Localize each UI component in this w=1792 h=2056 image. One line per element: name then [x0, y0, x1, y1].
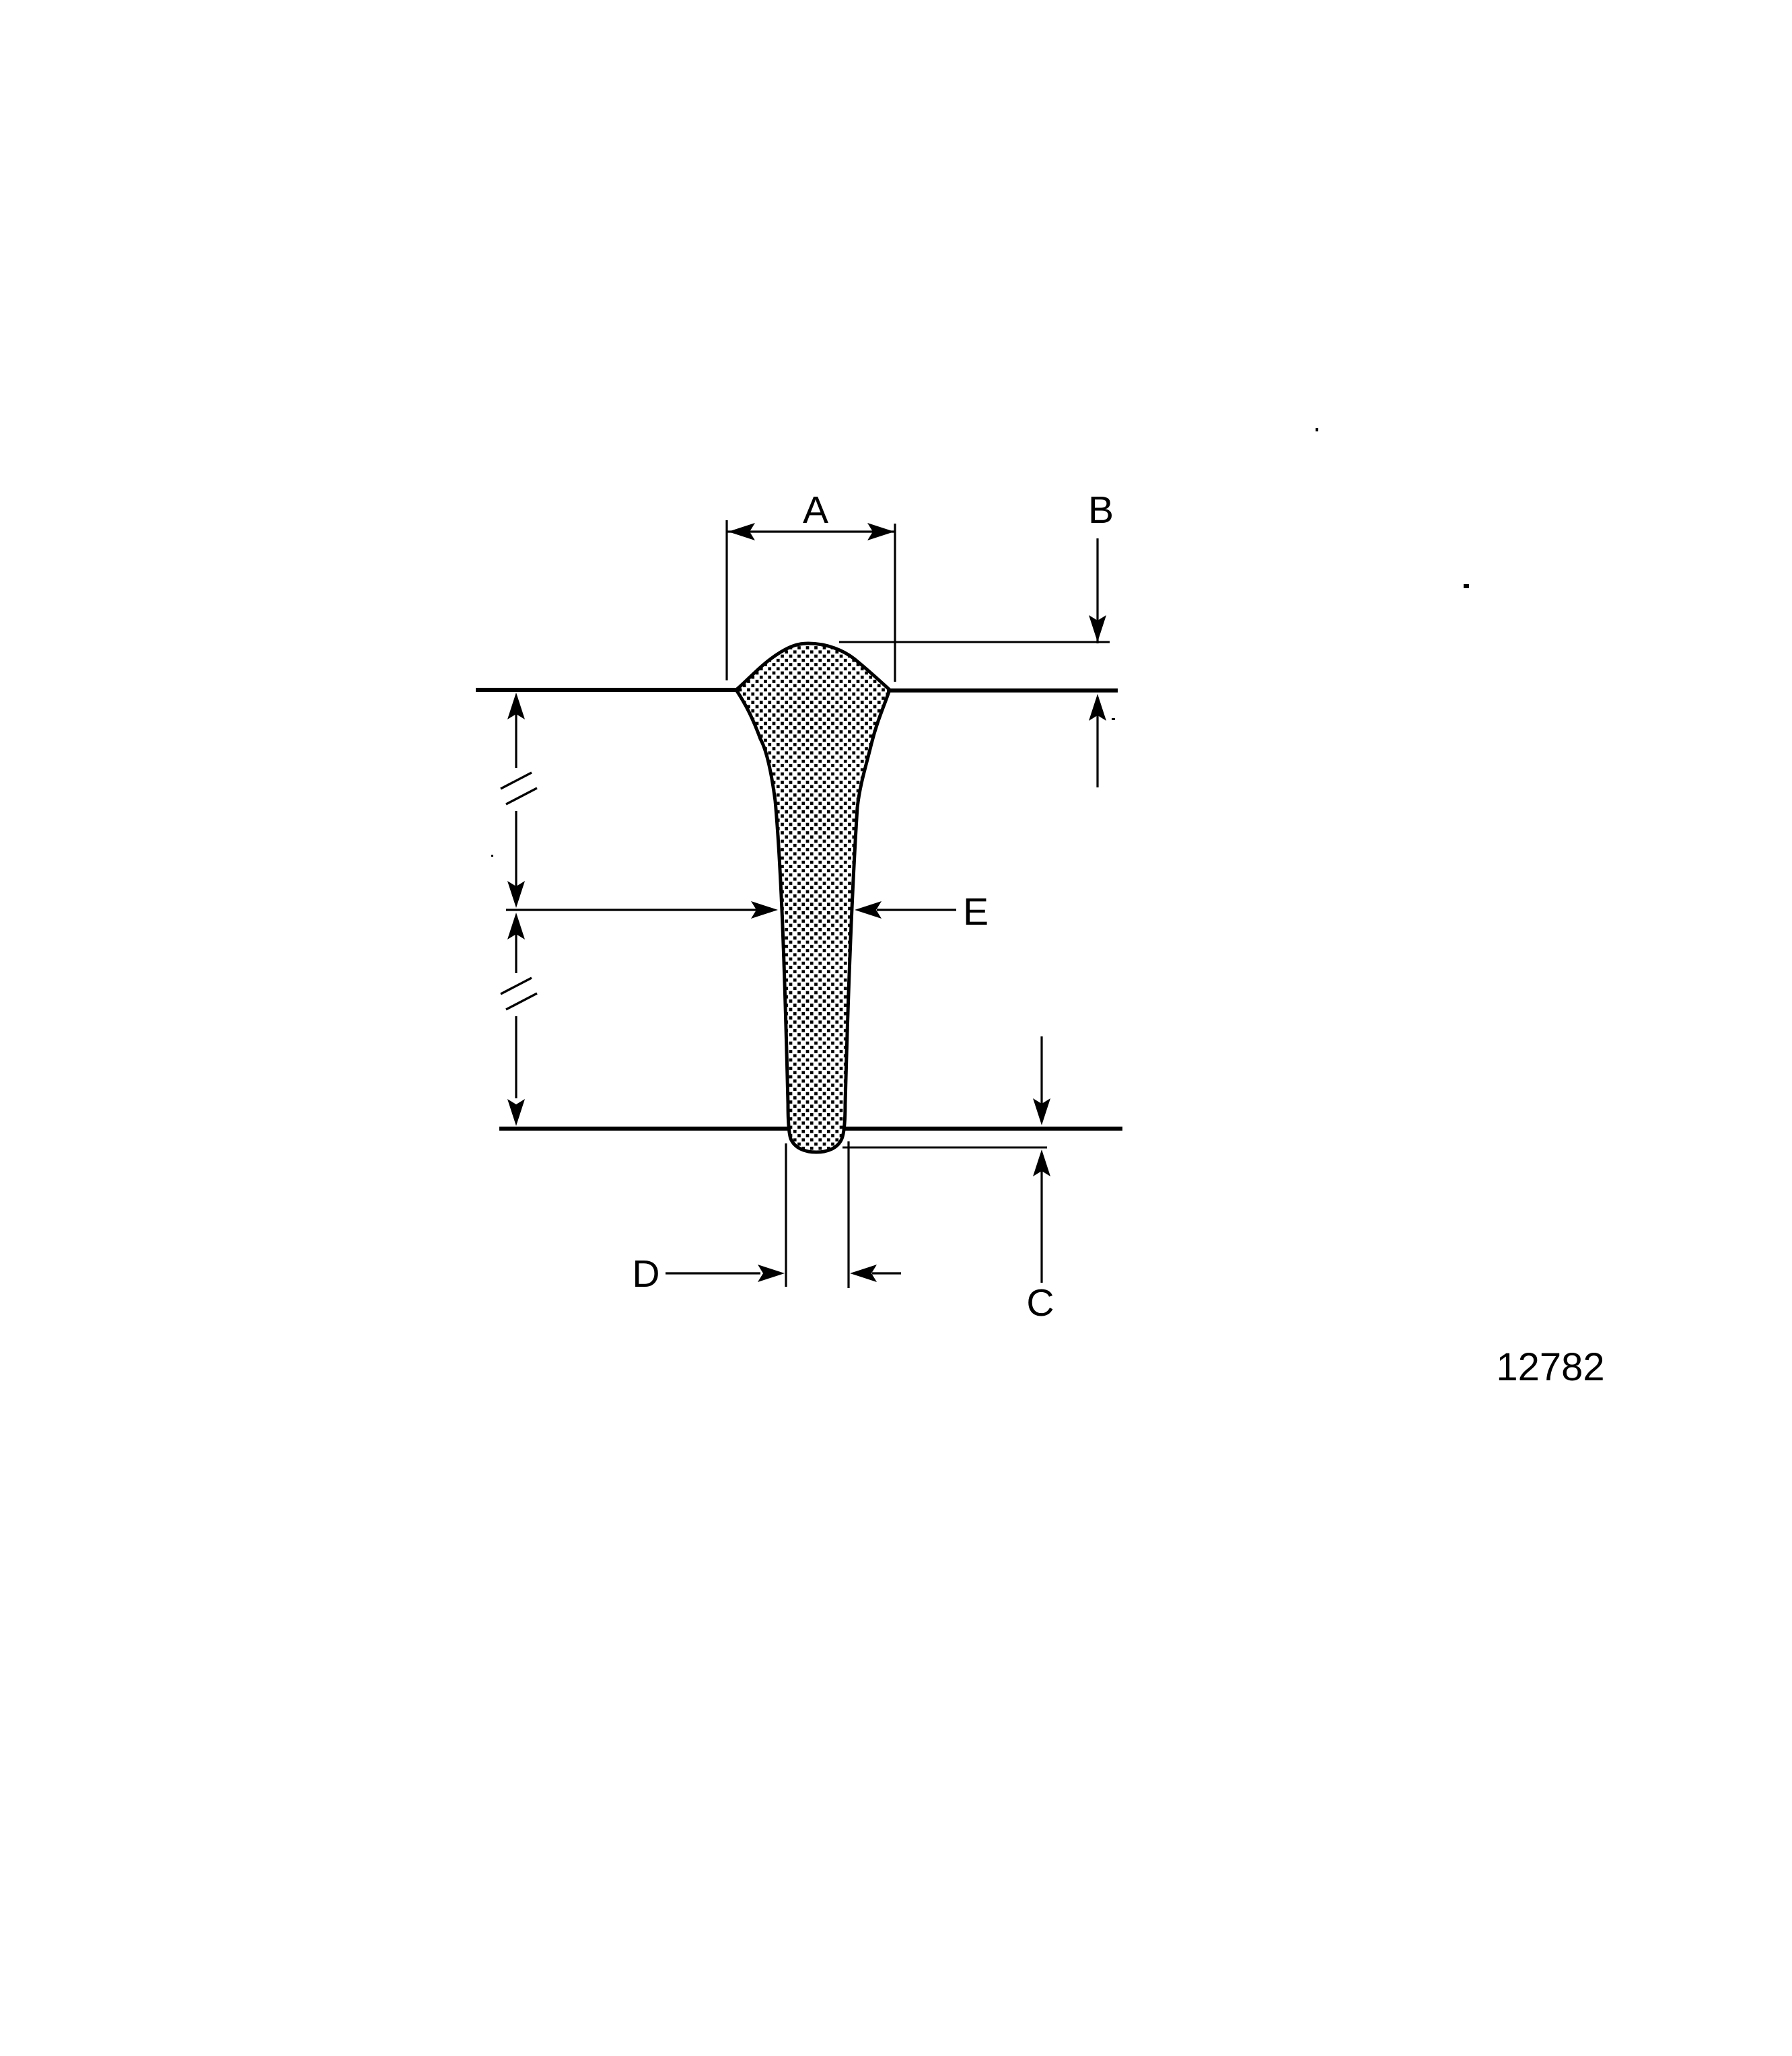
- svg-text:A: A: [803, 489, 828, 532]
- svg-text:E: E: [963, 890, 989, 933]
- svg-text:12782: 12782: [1496, 1345, 1604, 1389]
- svg-text:C: C: [1026, 1281, 1054, 1324]
- svg-text:D: D: [632, 1252, 659, 1296]
- svg-text:B: B: [1088, 489, 1114, 532]
